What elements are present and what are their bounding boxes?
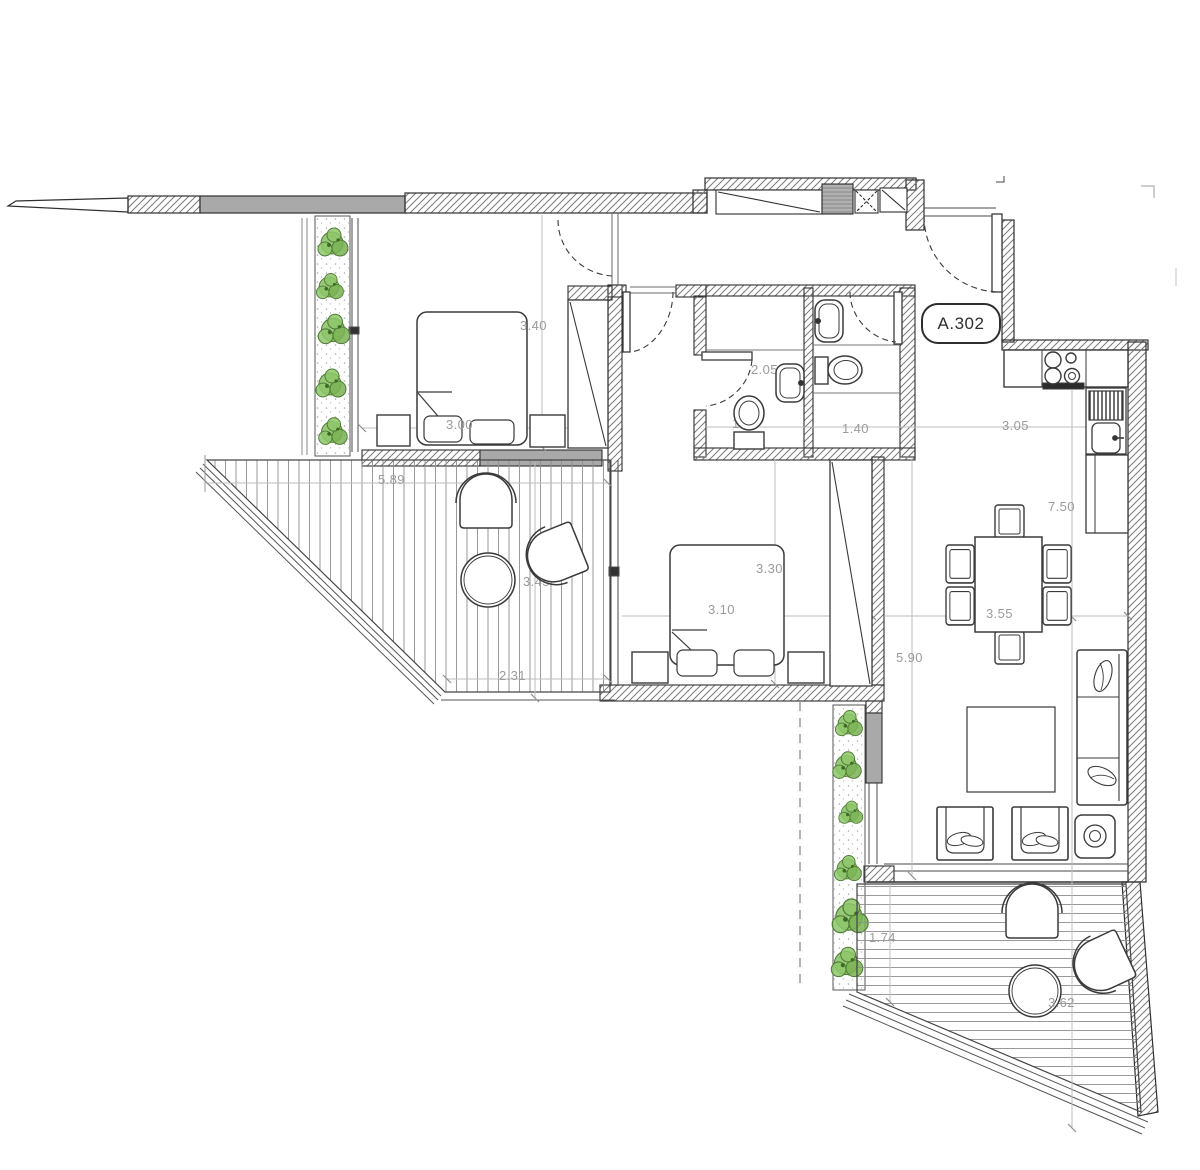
bathroom2-fixtures [813, 292, 902, 393]
door-leaf [702, 352, 752, 360]
plan-furniture [0, 0, 1200, 1170]
dim-bath2-width: 1.40 [842, 421, 869, 436]
sofa [1077, 650, 1127, 805]
nightstand [377, 415, 410, 446]
dim-right-wing-length: 7.50 [1048, 499, 1075, 514]
bedroom1-door-swing [558, 220, 612, 276]
dim-bedroom2-length: 3.30 [756, 561, 783, 576]
unit-number-badge: A.302 [921, 303, 1001, 344]
dim-bedroom1-depth: 3.40 [520, 318, 547, 333]
bathroom1-fixtures [702, 350, 804, 449]
terrace1-furniture [456, 473, 591, 607]
bedroom1-furniture [377, 300, 608, 448]
fridge-grill [1089, 391, 1123, 420]
entry-door-leaf [992, 214, 1002, 292]
tall-unit [1086, 455, 1128, 533]
entry-door-swing [924, 216, 1000, 292]
corridor-door-leaf [623, 292, 630, 352]
pillow [470, 420, 514, 444]
dim-dining-width: 3.55 [986, 606, 1013, 621]
nightstand [530, 415, 565, 447]
terrace-table [461, 553, 515, 607]
toilet-tank [815, 357, 828, 384]
toilet-tank [734, 432, 764, 449]
dim-terrace2-width: 3.62 [1048, 995, 1075, 1010]
burner [1045, 368, 1061, 384]
door-leaf [894, 292, 902, 344]
dining-set [946, 505, 1071, 664]
nightstand [788, 652, 824, 683]
door-swing [850, 292, 896, 342]
floor-plan-a302: 2.05 1.20 3.45 [0, 0, 1200, 1170]
dim-terrace1-top: 5.89 [378, 472, 405, 487]
living-room-furniture [937, 650, 1127, 860]
dim-kitchen-width: 3.05 [1002, 418, 1029, 433]
pillow [677, 650, 717, 676]
corridor-door-swing [630, 292, 673, 352]
stove-base [1043, 383, 1084, 389]
dim-terrace2-depth: 1.74 [869, 930, 896, 945]
dim-bedroom1-bed: 3.00 [446, 417, 473, 432]
pillow [734, 650, 774, 676]
dim-bedroom2-width: 3.10 [708, 602, 735, 617]
side-table [1075, 815, 1115, 858]
nightstand [632, 652, 668, 683]
dim-living-length: 5.90 [896, 650, 923, 665]
rug [967, 707, 1055, 792]
burner [1045, 352, 1061, 368]
bedroom2-furniture [632, 460, 872, 686]
dim-terrace1-bottom: 2.31 [499, 668, 526, 683]
burner [1066, 353, 1076, 363]
